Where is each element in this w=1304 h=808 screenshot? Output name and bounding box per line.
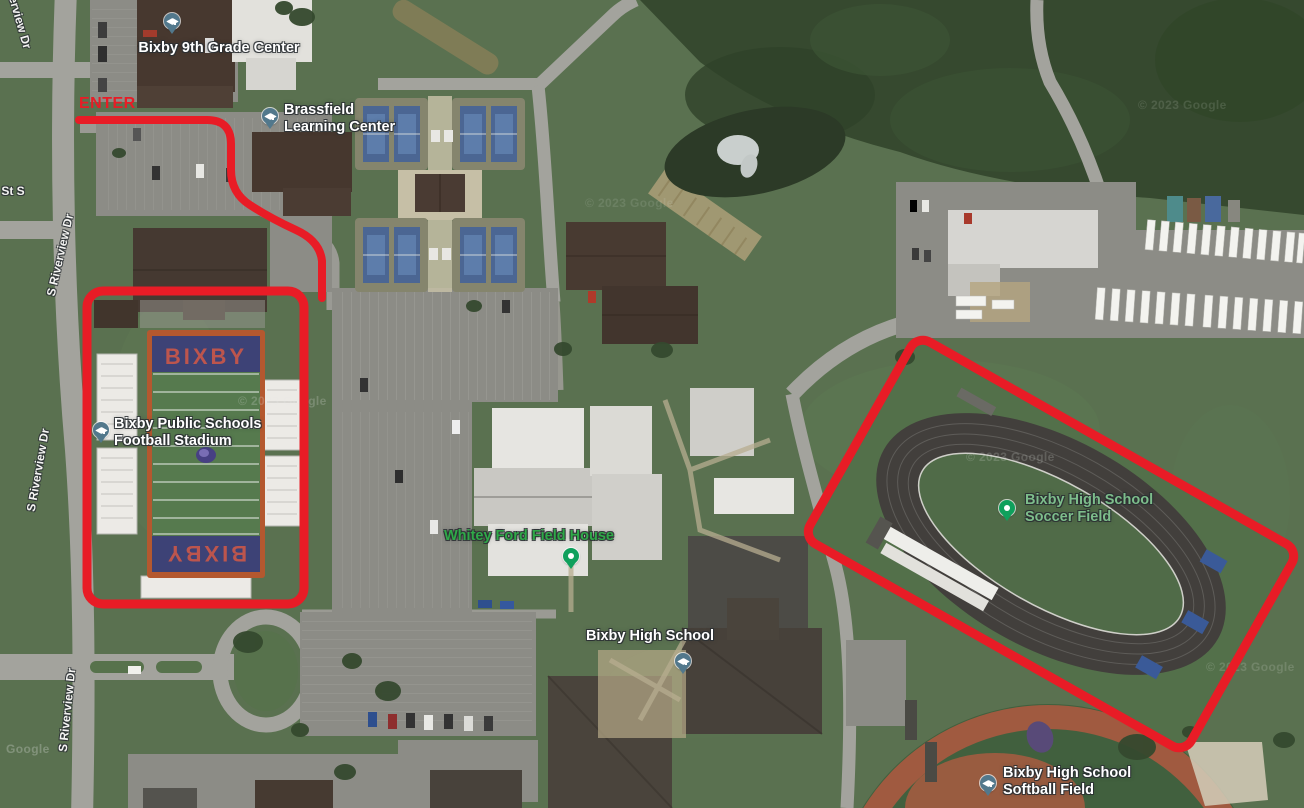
- poi-label-line: Bixby 9th Grade Center: [138, 40, 299, 57]
- enter-annotation-text: ENTER: [79, 95, 136, 113]
- pin-tail: [983, 789, 993, 796]
- pin-tail: [566, 562, 576, 569]
- pin-tail: [96, 436, 106, 443]
- school-pin-bixby-9th-grade-center[interactable]: [164, 13, 180, 36]
- street-s-riverview-dr-mid: S Riverview Dr: [24, 427, 52, 512]
- poi-label-line: Brassfield: [284, 102, 395, 119]
- poi-label-bixby-high-school[interactable]: Bixby High School: [586, 628, 714, 645]
- school-pin-bixby-high-school[interactable]: [675, 653, 691, 676]
- poi-label-bixby-high-school-soccer-field[interactable]: Bixby High SchoolSoccer Field: [1025, 492, 1153, 526]
- place-pin-bixby-high-school-soccer-field[interactable]: [999, 500, 1015, 523]
- place-pin-whitey-ford-field-house[interactable]: [563, 548, 579, 571]
- poi-label-line: Softball Field: [1003, 782, 1131, 799]
- poi-label-line: Football Stadium: [114, 433, 261, 450]
- poi-label-bixby-9th-grade-center[interactable]: Bixby 9th Grade Center: [138, 40, 299, 57]
- poi-label-line: Bixby Public Schools: [114, 416, 261, 433]
- poi-label-line: Bixby High School: [1003, 765, 1131, 782]
- street-s-riverview-dr-clipped-top: S Riverview Dr: [0, 0, 34, 50]
- poi-label-brassfield-learning-center[interactable]: BrassfieldLearning Center: [284, 102, 395, 136]
- satellite-map-canvas[interactable]: BIXBY BIXBY: [0, 0, 1304, 808]
- pin-tail: [167, 27, 177, 34]
- poi-label-line: Soccer Field: [1025, 509, 1153, 526]
- school-pin-bixby-high-school-softball-field[interactable]: [980, 775, 996, 798]
- poi-label-whitey-ford-field-house[interactable]: Whitey Ford Field House: [444, 528, 614, 545]
- street-s-riverview-dr-lower: S Riverview Dr: [56, 667, 79, 752]
- poi-label-line: Whitey Ford Field House: [444, 528, 614, 545]
- school-pin-brassfield-learning-center[interactable]: [262, 108, 278, 131]
- map-labels-layer: ENTER S Riverview Dr1 St SS Riverview Dr…: [0, 0, 1304, 808]
- poi-label-line: Learning Center: [284, 119, 395, 136]
- poi-label-bixby-public-schools-football-stadium[interactable]: Bixby Public SchoolsFootball Stadium: [114, 416, 261, 450]
- street-s-riverview-dr-upper: S Riverview Dr: [44, 212, 77, 297]
- street-1-st-s: 1 St S: [0, 184, 25, 198]
- pin-tail: [678, 667, 688, 674]
- poi-label-bixby-high-school-softball-field[interactable]: Bixby High SchoolSoftball Field: [1003, 765, 1131, 799]
- poi-label-line: Bixby High School: [586, 628, 714, 645]
- pin-tail: [1002, 514, 1012, 521]
- poi-label-line: Bixby High School: [1025, 492, 1153, 509]
- school-pin-bixby-public-schools-football-stadium[interactable]: [93, 422, 109, 445]
- pin-tail: [265, 122, 275, 129]
